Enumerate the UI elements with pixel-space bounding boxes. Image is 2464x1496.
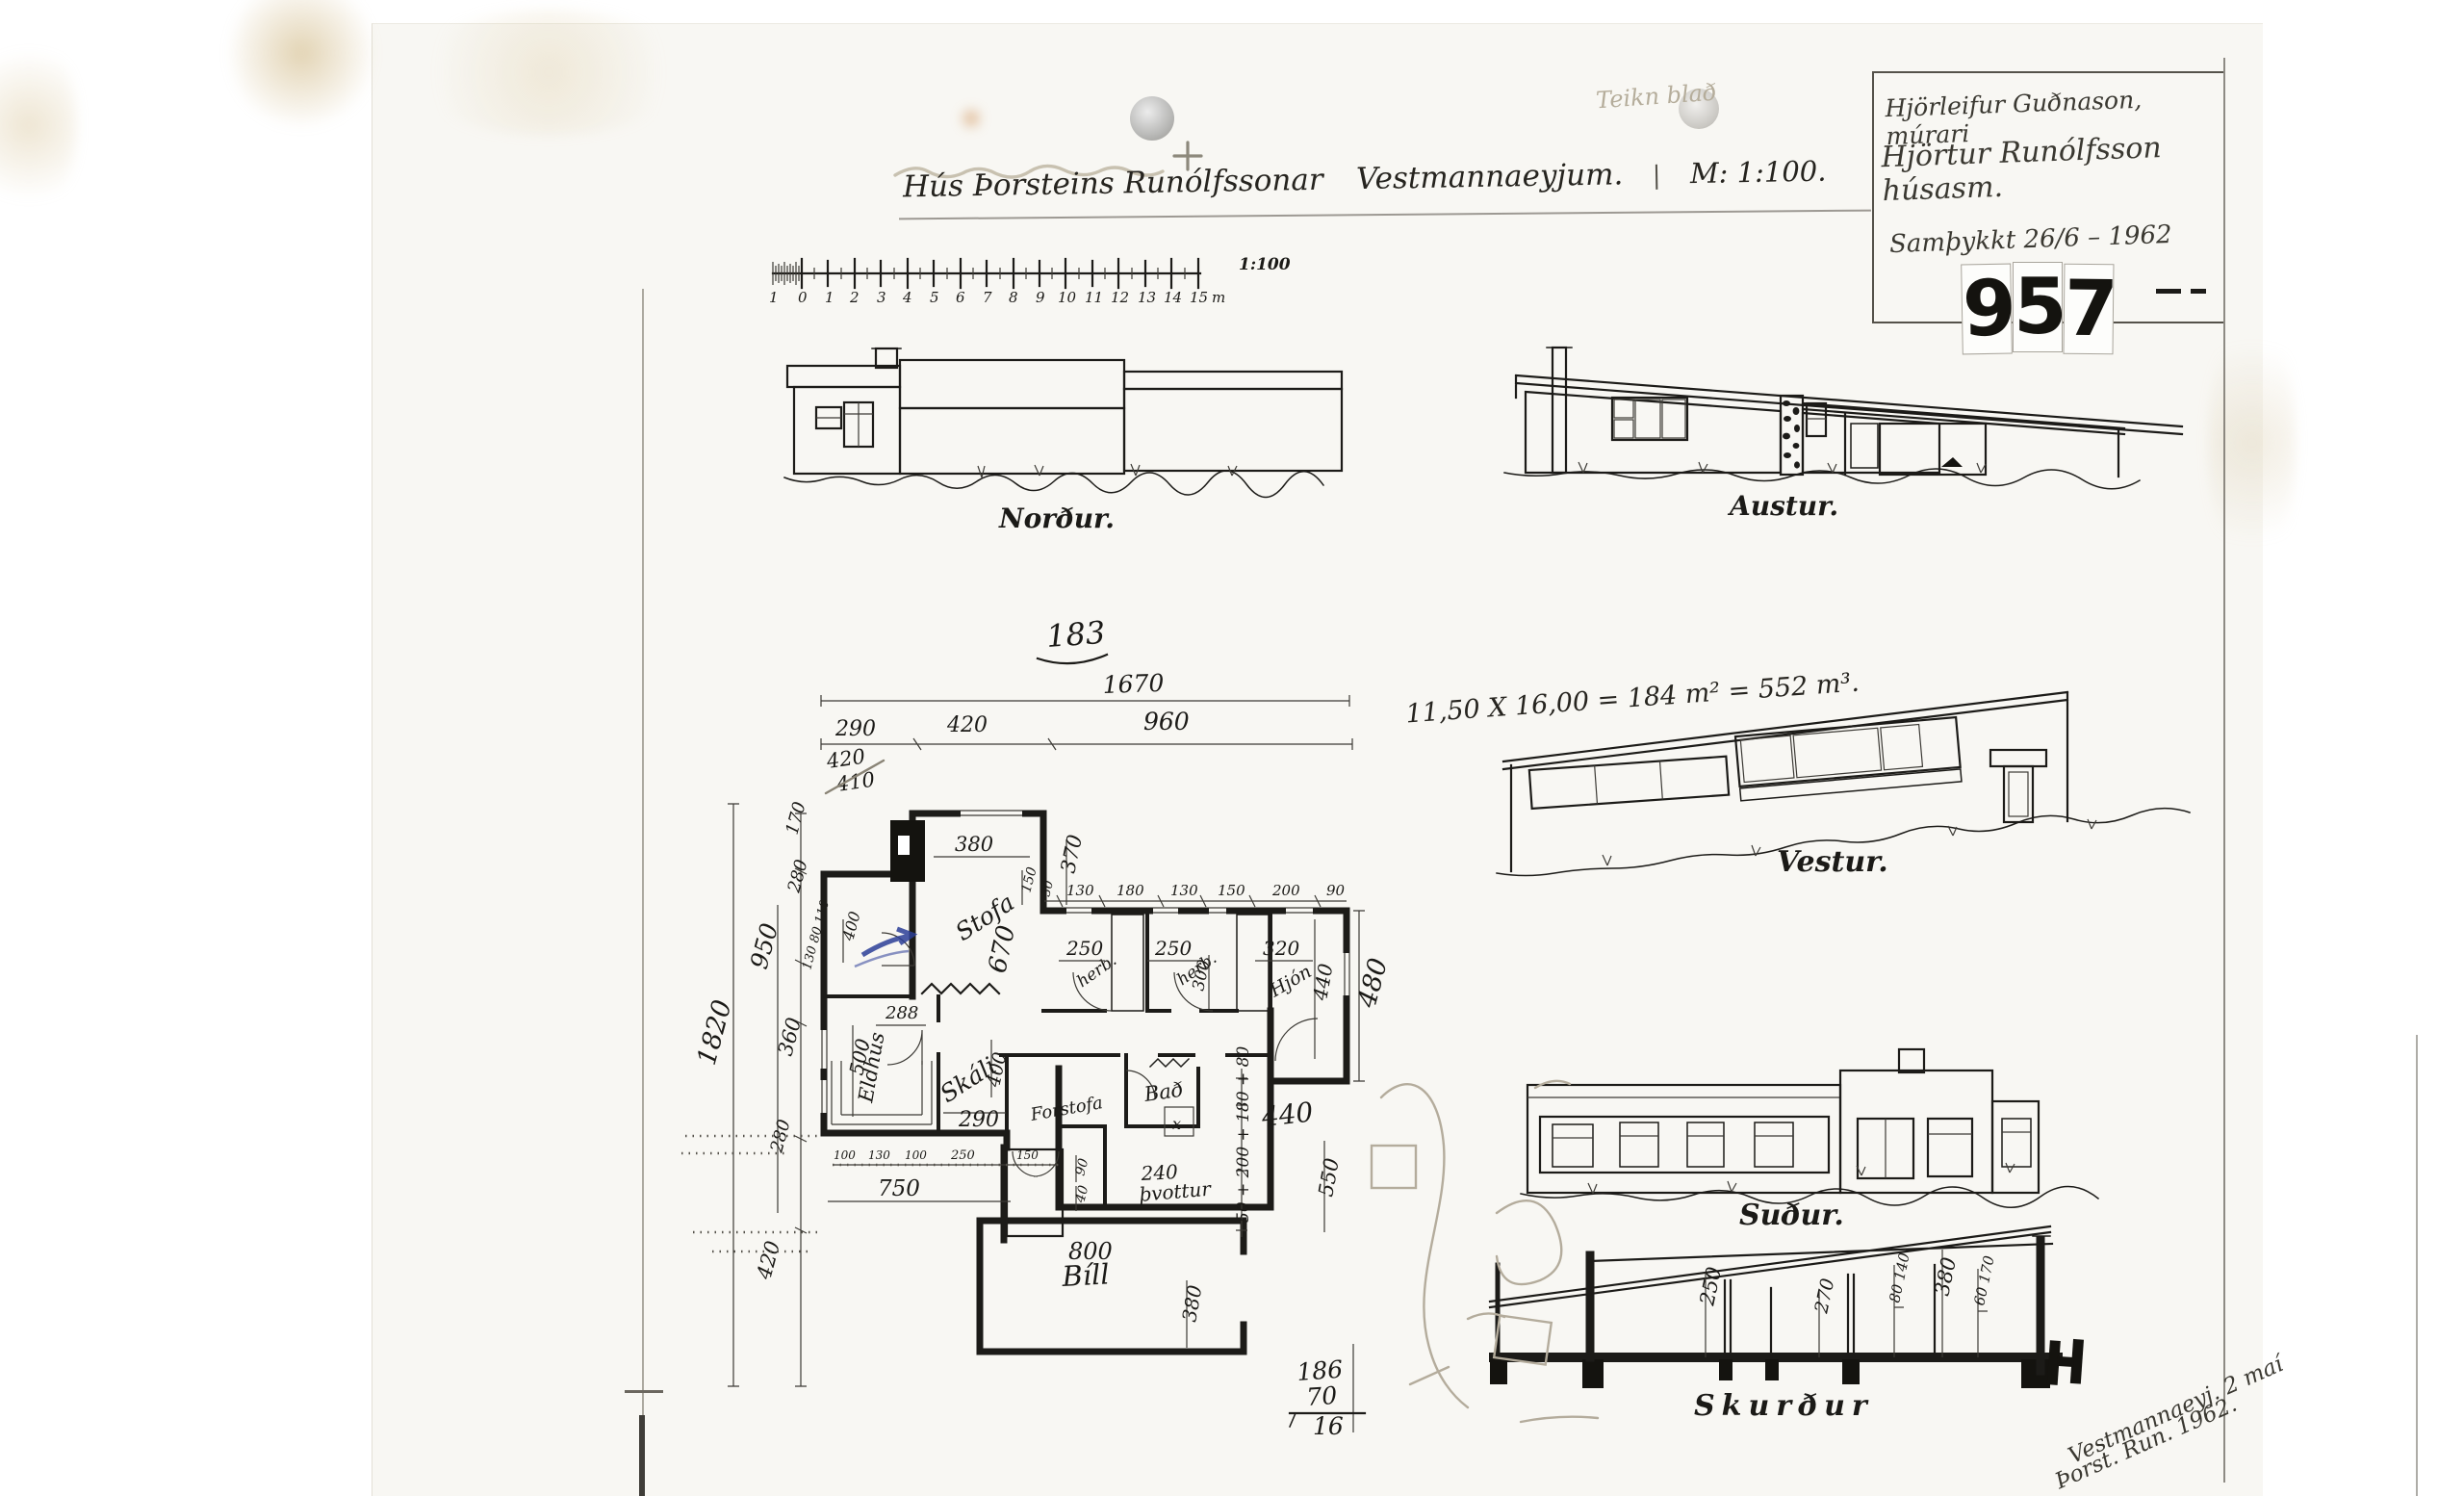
north-right-block bbox=[1124, 389, 1342, 471]
west-window-band bbox=[1529, 757, 1729, 809]
sum-value: 70 bbox=[1305, 1381, 1338, 1411]
garage-door bbox=[1880, 424, 1986, 475]
plan-dim: 280 bbox=[766, 1118, 794, 1156]
plan-dim: 30 bbox=[1039, 879, 1057, 898]
paper-stain bbox=[2209, 308, 2296, 578]
door-handle-mark bbox=[1941, 457, 1963, 467]
south-right-windows bbox=[1858, 1119, 1972, 1178]
plan-dim: 288 bbox=[885, 1003, 918, 1023]
fold-line-right bbox=[2416, 1035, 2418, 1496]
plan-dim: 90 bbox=[1072, 1157, 1091, 1177]
elevation-west: Vestur. bbox=[1492, 669, 2243, 890]
elevation-east: Austur. bbox=[1497, 322, 2209, 534]
ground-line bbox=[784, 471, 1323, 498]
south-right-block bbox=[1840, 1070, 1992, 1193]
north-windows bbox=[816, 402, 873, 447]
section-dim: 80 140 bbox=[1886, 1251, 1913, 1304]
east-stone-pillar bbox=[1781, 396, 1803, 475]
scalebar-tick-label: 9 bbox=[1036, 289, 1045, 306]
section-dim: 250 bbox=[1695, 1265, 1726, 1308]
plan-dim: 1670 bbox=[1102, 669, 1165, 699]
plan-dim: 100 bbox=[834, 1148, 856, 1162]
plan-dim: 130 bbox=[868, 1148, 890, 1162]
plan-dim: 420 bbox=[946, 713, 988, 737]
plan-dim: 150 bbox=[1218, 882, 1245, 899]
scalebar-tick-label: 15 bbox=[1190, 289, 1208, 306]
plan-dim: 100 bbox=[905, 1148, 927, 1162]
plan-number: 183 bbox=[1045, 614, 1107, 655]
plan-dim: 240 bbox=[1140, 1160, 1179, 1185]
plan-dim: 130 80 110 bbox=[800, 898, 833, 971]
ink-mark bbox=[2044, 1338, 2102, 1396]
plan-dim: 320 bbox=[1263, 937, 1299, 960]
scalebar-pre-label: 1 bbox=[769, 289, 779, 306]
plan-dim: 150 bbox=[1016, 1148, 1039, 1162]
scalebar-tick-label: 12 bbox=[1111, 289, 1129, 306]
plan-dim: 750 bbox=[878, 1176, 920, 1201]
plan-dim: 150 bbox=[1018, 865, 1039, 894]
plan-dim: 170 bbox=[783, 800, 810, 838]
west-roof-beam bbox=[1503, 692, 2067, 821]
plan-dim: 800 bbox=[1068, 1238, 1113, 1265]
elevation-label-east: Austur. bbox=[1727, 490, 1838, 522]
closet-x: x bbox=[1172, 1115, 1181, 1133]
plan-dim: 550 bbox=[1314, 1156, 1344, 1199]
fold-line-end bbox=[639, 1415, 645, 1496]
fold-crossbar bbox=[625, 1390, 663, 1393]
drawing-title: Hús Þorsteins Runólfssonar bbox=[903, 163, 1323, 205]
elevation-label-north: Norður. bbox=[998, 503, 1115, 534]
grass-tufts bbox=[1578, 462, 1986, 473]
plan-dim: 380 bbox=[1177, 1283, 1206, 1324]
dash-mark bbox=[2156, 289, 2181, 294]
east-carport bbox=[1803, 403, 2124, 477]
elevation-north: Norður. bbox=[780, 337, 1396, 544]
paper-stain bbox=[961, 108, 982, 129]
plan-dim: 400 bbox=[838, 910, 864, 943]
north-roof-bands bbox=[787, 360, 1342, 408]
scalebar-tick-label: 7 bbox=[983, 289, 992, 306]
south-chimney bbox=[1899, 1049, 1924, 1072]
scalebar-tick-label: 4 bbox=[902, 289, 912, 306]
plan-dim: 250 bbox=[1065, 937, 1103, 960]
scalebar-tick-label: 6 bbox=[956, 289, 965, 306]
wing-window bbox=[2002, 1119, 2031, 1167]
plan-dim: 40 bbox=[1072, 1184, 1091, 1205]
plan-dim: 200 bbox=[1271, 882, 1300, 899]
section-dim: 380 bbox=[1930, 1255, 1961, 1298]
radiator-zigzag bbox=[1150, 1059, 1189, 1067]
elevation-label-west: Vestur. bbox=[1777, 845, 1888, 879]
elevation-south: Suður. bbox=[1516, 1042, 2170, 1244]
titleblock-line: Samþykkt 26/6 – 1962 bbox=[1889, 220, 2172, 259]
plan-dim: 290 bbox=[958, 1108, 999, 1132]
scalebar-tick-label: 11 bbox=[1085, 289, 1103, 306]
room-label-forstofa: Forstofa bbox=[1028, 1093, 1104, 1125]
pencil-dim: 410 bbox=[834, 768, 876, 796]
scalebar-tick-label: 1 bbox=[825, 289, 834, 306]
number-underline bbox=[1038, 655, 1107, 663]
scalebar-tick-label: 3 bbox=[877, 289, 886, 306]
scalebar-ratio: 1:100 bbox=[1239, 255, 1291, 274]
scalebar-tick-label: 5 bbox=[930, 289, 939, 306]
plan-dim: 370 bbox=[1056, 833, 1087, 875]
plan-dim: 1820 bbox=[692, 996, 738, 1068]
plan-dim: 180 bbox=[1116, 882, 1144, 899]
east-chimney-post bbox=[1553, 348, 1566, 473]
scalebar-tick-label: 0 bbox=[798, 289, 808, 306]
plan-dim: 440 bbox=[1259, 1096, 1315, 1134]
east-facade bbox=[1526, 392, 1781, 473]
plan-dim: 90 bbox=[1326, 882, 1346, 899]
scalebar-tick-label: 14 bbox=[1164, 289, 1182, 306]
grass-tufts bbox=[1588, 1163, 2015, 1194]
north-center-block bbox=[900, 408, 1124, 474]
folding-door-zigzag bbox=[922, 984, 999, 993]
sum-value: 16 bbox=[1313, 1412, 1344, 1440]
plan-dim-lines-top bbox=[821, 695, 1352, 750]
scalebar-tick-label: 13 bbox=[1138, 289, 1156, 306]
plan-dim: 130 bbox=[1066, 882, 1094, 899]
plan-dim: 420 bbox=[752, 1238, 784, 1282]
room-label-bad: Bað bbox=[1142, 1077, 1185, 1106]
plan-dim: 290 bbox=[834, 717, 876, 741]
sill-band bbox=[1740, 769, 1962, 801]
paper-stain bbox=[404, 10, 693, 135]
plan-dim: 250 bbox=[1154, 937, 1192, 960]
titleblock-line: Hjörtur Runólfsson húsasm. bbox=[1881, 129, 2224, 208]
pencil-sketch bbox=[1352, 1030, 1603, 1434]
drawing-scale: M: 1:100. bbox=[1690, 155, 1827, 190]
paper-stain bbox=[229, 0, 373, 135]
plan-dim: 280 bbox=[783, 858, 811, 896]
plan-dim: 250 bbox=[950, 1148, 975, 1163]
fold-line bbox=[642, 289, 644, 1496]
east-facade-right bbox=[1803, 413, 1939, 473]
plan-dim: 480 bbox=[1352, 955, 1395, 1012]
paper-stain bbox=[0, 29, 77, 221]
plan-dim: 130 bbox=[1170, 882, 1198, 899]
hatched-panel bbox=[1851, 424, 1878, 468]
plan-dim: 50 + 200 + 180 + 80 bbox=[1234, 1046, 1253, 1223]
section-label: Skurður bbox=[1694, 1389, 1874, 1423]
section-dim: 270 bbox=[1810, 1277, 1838, 1316]
dash-mark bbox=[2191, 289, 2206, 294]
plan-dim: 440 bbox=[1308, 962, 1337, 1003]
section-dim: 60 170 bbox=[1970, 1253, 1998, 1307]
east-small-window bbox=[1807, 403, 1826, 436]
drawing-location: Vestmannaeyjum. bbox=[1356, 157, 1624, 196]
door-parapet bbox=[1990, 750, 2046, 766]
south-small-wing bbox=[1992, 1101, 2039, 1193]
fireplace-opening bbox=[898, 836, 910, 855]
room-label-hjon: Hjón bbox=[1266, 961, 1316, 1002]
scalebar-tick-label: 10 bbox=[1058, 289, 1077, 306]
scanned-blueprint-page: Teikn blað Hús Þorsteins Runólfssonar Ve… bbox=[0, 0, 2464, 1496]
north-left-block bbox=[794, 387, 900, 474]
floor-plan: 183 1670 290 420 960 420 410 1820 170 28… bbox=[674, 616, 1415, 1454]
west-door bbox=[1990, 750, 2046, 822]
scalebar-unit: m bbox=[1212, 289, 1225, 306]
scalebar-tick-label: 8 bbox=[1009, 289, 1018, 306]
plan-dim: 380 bbox=[955, 833, 993, 856]
plan-dim: 960 bbox=[1143, 708, 1190, 735]
scalebar-tick-label: 2 bbox=[849, 289, 860, 306]
scale-bar: 1 0 1 2 3 4 5 6 7 8 9 10 11 12 13 14 15 … bbox=[765, 243, 1381, 329]
wardrobe-block bbox=[1237, 915, 1269, 1011]
title-divider: | bbox=[1652, 162, 1660, 191]
